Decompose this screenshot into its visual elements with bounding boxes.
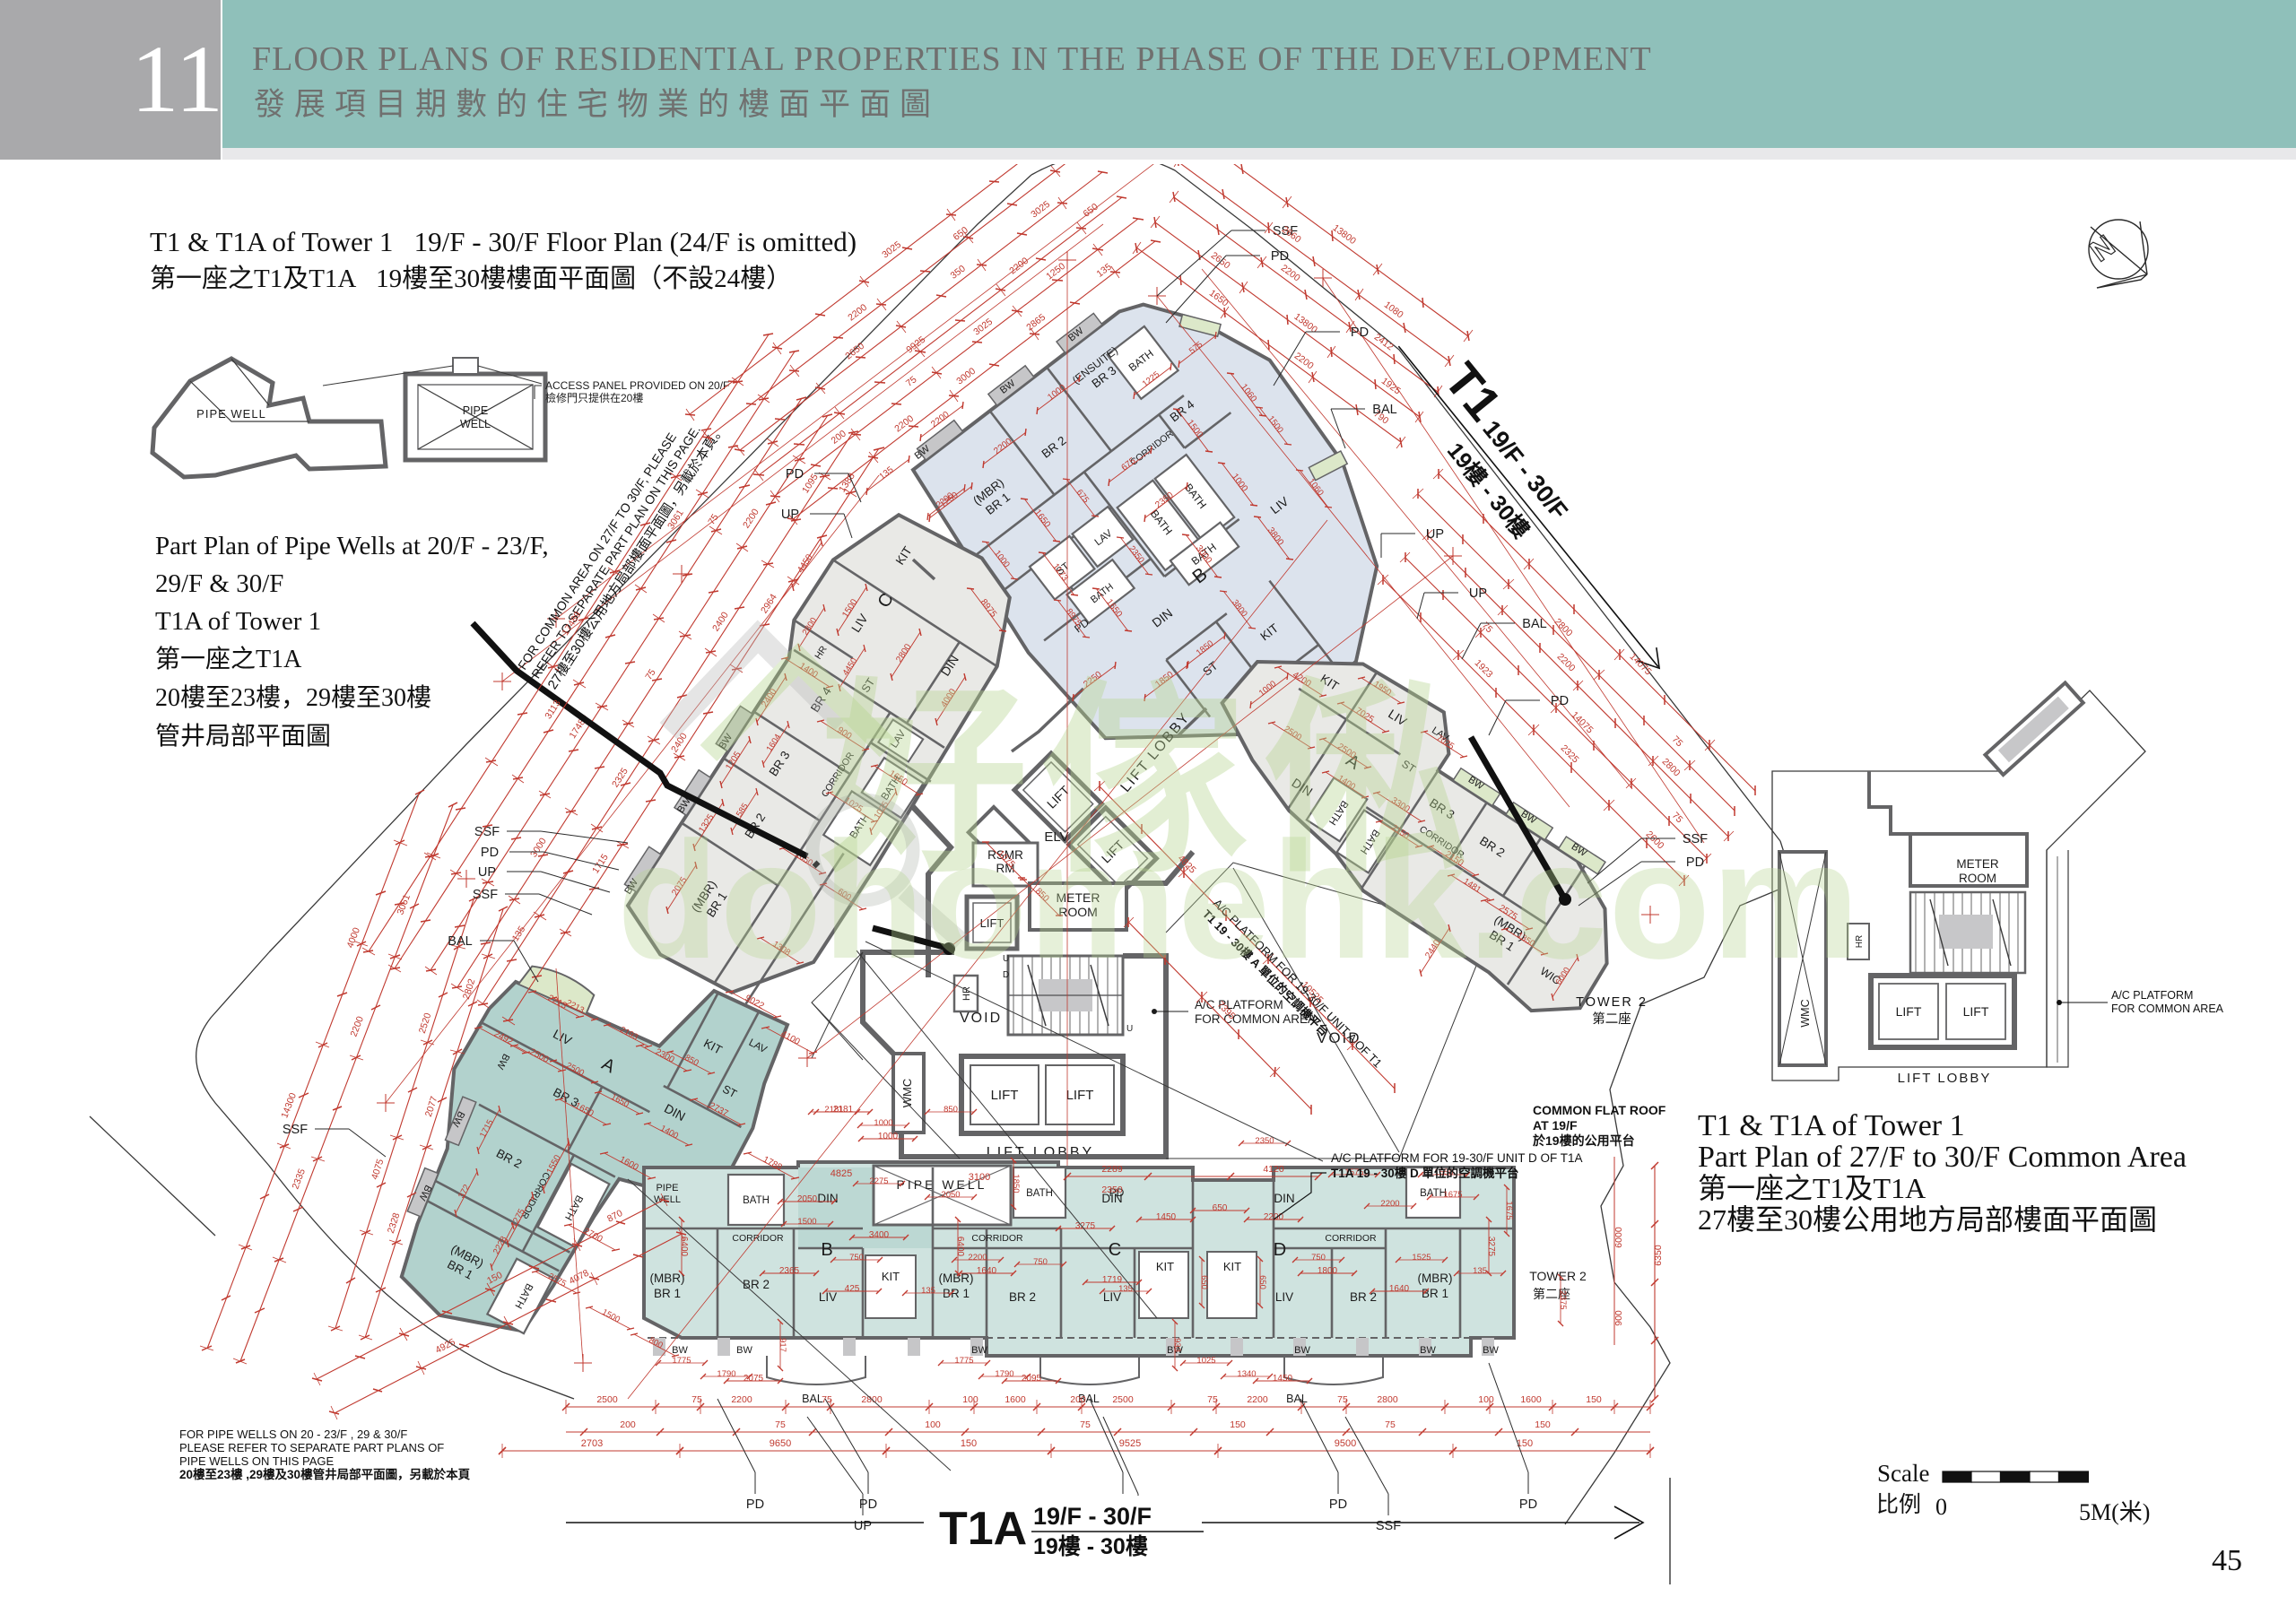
svg-text:DIN: DIN	[1274, 1192, 1294, 1205]
svg-text:COMMON FLAT ROOF: COMMON FLAT ROOF	[1533, 1103, 1666, 1117]
svg-text:BW: BW	[1420, 1345, 1436, 1356]
svg-text:BR 2: BR 2	[1350, 1290, 1377, 1304]
svg-text:1775: 1775	[672, 1356, 691, 1366]
svg-text:TOWER 2: TOWER 2	[1576, 995, 1648, 1010]
svg-text:135: 135	[1095, 261, 1114, 279]
svg-text:650: 650	[952, 224, 970, 242]
svg-text:REFER TO SEPARATE PART PLAN ON: REFER TO SEPARATE PART PLAN ON THIS PAGE…	[528, 422, 703, 681]
svg-text:WELL: WELL	[460, 418, 491, 430]
svg-text:(MBR): (MBR)	[1418, 1271, 1453, 1285]
svg-text:75: 75	[1207, 1394, 1218, 1405]
svg-text:3275: 3275	[1075, 1221, 1096, 1231]
svg-text:BAL: BAL	[1372, 403, 1396, 417]
svg-text:PD: PD	[481, 846, 499, 860]
svg-text:4120: 4120	[1263, 1164, 1284, 1175]
svg-text:1450: 1450	[1156, 1212, 1177, 1222]
svg-text:1675: 1675	[1443, 1190, 1462, 1200]
svg-text:KIT: KIT	[1223, 1260, 1241, 1273]
svg-text:200: 200	[1070, 1394, 1086, 1405]
svg-text:75: 75	[1337, 1394, 1348, 1405]
svg-text:2350: 2350	[1101, 1185, 1123, 1195]
svg-text:1450: 1450	[1273, 1374, 1293, 1384]
svg-text:1650: 1650	[1207, 288, 1231, 309]
svg-text:75: 75	[1385, 1419, 1396, 1430]
svg-text:BW: BW	[971, 1345, 987, 1356]
svg-text:CORRIDOR: CORRIDOR	[1325, 1233, 1377, 1244]
svg-text:100: 100	[962, 1394, 978, 1405]
svg-text:2865: 2865	[1024, 312, 1048, 334]
svg-text:檢修門只提供在20樓: 檢修門只提供在20樓	[545, 391, 643, 404]
svg-text:14075: 14075	[1570, 709, 1596, 735]
svg-text:2200: 2200	[348, 1015, 366, 1038]
svg-text:UP: UP	[781, 508, 799, 522]
svg-text:BR 2: BR 2	[1009, 1290, 1036, 1304]
svg-text:650: 650	[1199, 1275, 1209, 1289]
svg-text:KIT: KIT	[882, 1270, 900, 1283]
svg-text:PD: PD	[1519, 1497, 1537, 1512]
svg-text:2200: 2200	[741, 507, 761, 530]
svg-text:2200: 2200	[1555, 651, 1578, 673]
svg-text:1250: 1250	[1044, 261, 1067, 282]
svg-text:2365: 2365	[779, 1266, 800, 1276]
svg-text:75: 75	[775, 1419, 786, 1430]
svg-text:BW: BW	[1294, 1345, 1310, 1356]
svg-text:2350: 2350	[1255, 1136, 1274, 1146]
svg-text:1600: 1600	[1520, 1394, 1542, 1405]
svg-text:UP: UP	[478, 865, 496, 880]
svg-text:19/F - 30/F: 19/F - 30/F	[1033, 1503, 1152, 1530]
svg-text:2335: 2335	[290, 1167, 308, 1191]
svg-text:D: D	[1274, 1240, 1286, 1260]
svg-text:6400: 6400	[679, 1237, 689, 1257]
svg-text:BATH: BATH	[743, 1195, 770, 1206]
svg-text:2050: 2050	[941, 1190, 960, 1200]
svg-text:1800: 1800	[1318, 1266, 1338, 1276]
svg-text:CORRIDOR: CORRIDOR	[971, 1233, 1023, 1244]
svg-text:4078: 4078	[567, 1268, 590, 1287]
svg-text:A/C PLATFORM: A/C PLATFORM	[2111, 989, 2193, 1002]
svg-text:SSF: SSF	[473, 888, 498, 902]
svg-text:PIPE WELL: PIPE WELL	[196, 407, 266, 421]
svg-text:(MBR): (MBR)	[650, 1271, 685, 1285]
svg-text:6350: 6350	[1653, 1245, 1664, 1266]
svg-text:1500: 1500	[797, 1217, 816, 1227]
svg-text:1340: 1340	[1237, 1369, 1256, 1379]
svg-text:VOID: VOID	[960, 1011, 1002, 1026]
svg-text:4925: 4925	[433, 1337, 457, 1356]
svg-text:第二座: 第二座	[1592, 1011, 1631, 1027]
svg-text:2181: 2181	[824, 1105, 843, 1115]
svg-text:2325: 2325	[610, 766, 631, 789]
svg-text:PD: PD	[786, 467, 804, 482]
svg-text:1000: 1000	[878, 1132, 899, 1141]
svg-text:WMC: WMC	[1799, 999, 1812, 1027]
svg-text:FOR COMMON AREA: FOR COMMON AREA	[2111, 1002, 2224, 1015]
svg-text:750: 750	[849, 1253, 864, 1263]
svg-text:6000: 6000	[1613, 1227, 1624, 1248]
svg-text:933: 933	[1172, 1338, 1182, 1352]
svg-text:3000: 3000	[528, 836, 549, 859]
svg-text:FOR COMMON AREA ON 27/F TO 30/: FOR COMMON AREA ON 27/F TO 30/F, PLEASE	[515, 430, 679, 673]
svg-text:2800: 2800	[1660, 756, 1683, 778]
svg-text:CORRIDOR: CORRIDOR	[732, 1233, 784, 1244]
svg-text:SSF: SSF	[1376, 1519, 1401, 1533]
svg-text:1080: 1080	[1382, 299, 1405, 321]
svg-text:135: 135	[1473, 1266, 1487, 1276]
svg-text:75: 75	[822, 1394, 832, 1405]
svg-text:750: 750	[1311, 1253, 1326, 1263]
svg-text:ROOM: ROOM	[1959, 872, 1996, 885]
svg-text:750: 750	[1033, 1257, 1048, 1267]
svg-text:BAL: BAL	[448, 934, 472, 949]
svg-text:dohomehk.com: dohomehk.com	[617, 808, 1860, 994]
svg-text:850: 850	[944, 1105, 958, 1115]
svg-text:135: 135	[878, 464, 896, 482]
svg-text:1790: 1790	[717, 1369, 735, 1379]
svg-text:BATH: BATH	[1026, 1188, 1053, 1199]
svg-text:1640: 1640	[977, 1266, 997, 1276]
svg-text:LIFT: LIFT	[1963, 1004, 1989, 1019]
svg-text:1600: 1600	[1004, 1394, 1026, 1405]
svg-text:135: 135	[921, 1286, 935, 1296]
svg-text:2412: 2412	[1372, 332, 1396, 353]
svg-text:2800: 2800	[1552, 616, 1575, 638]
svg-text:3025: 3025	[880, 239, 903, 261]
svg-text:B: B	[821, 1240, 832, 1260]
svg-text:DIN: DIN	[817, 1192, 838, 1205]
svg-text:1675: 1675	[1504, 1201, 1514, 1219]
svg-text:2200: 2200	[1247, 1394, 1268, 1405]
svg-text:2400: 2400	[710, 610, 731, 633]
svg-text:2703: 2703	[581, 1438, 603, 1449]
svg-text:150: 150	[961, 1438, 977, 1449]
svg-text:650: 650	[1213, 1203, 1228, 1213]
svg-text:75: 75	[691, 1394, 702, 1405]
svg-text:2075: 2075	[744, 1374, 764, 1384]
svg-text:FOR COMMON AREA: FOR COMMON AREA	[1195, 1012, 1316, 1026]
svg-text:75: 75	[904, 374, 919, 389]
svg-text:4825: 4825	[831, 1168, 852, 1179]
svg-text:BR 1: BR 1	[1422, 1287, 1448, 1300]
svg-text:BW: BW	[736, 1345, 752, 1356]
svg-text:1525: 1525	[1412, 1253, 1431, 1263]
svg-text:A/C PLATFORM FOR 19-30/F U: A/C PLATFORM FOR 19-30/F UNIT D OF T1A	[1331, 1151, 1583, 1165]
svg-text:LIV: LIV	[819, 1290, 837, 1304]
svg-text:2800: 2800	[1377, 1394, 1398, 1405]
svg-text:2200: 2200	[892, 413, 916, 435]
svg-text:1640: 1640	[1389, 1284, 1410, 1294]
svg-text:TOWER 2: TOWER 2	[1529, 1269, 1587, 1283]
svg-text:UP: UP	[1426, 527, 1444, 542]
svg-text:2375: 2375	[1558, 1290, 1568, 1309]
svg-text:SSF: SSF	[283, 1123, 308, 1137]
svg-text:2660: 2660	[1280, 224, 1303, 246]
svg-text:2200: 2200	[1279, 263, 1302, 284]
svg-text:2200: 2200	[1380, 1199, 1399, 1209]
svg-text:3100: 3100	[969, 1172, 990, 1183]
svg-text:AT 19/F: AT 19/F	[1533, 1118, 1578, 1133]
svg-text:1790: 1790	[995, 1369, 1013, 1379]
svg-text:UP: UP	[854, 1519, 872, 1533]
svg-text:LIV: LIV	[1275, 1290, 1293, 1304]
svg-text:3025: 3025	[971, 317, 995, 338]
svg-text:BAL: BAL	[802, 1393, 823, 1405]
svg-text:T1A 19 - 30樓 D 單位的空調機平台: T1A 19 - 30樓 D 單位的空調機平台	[1331, 1166, 1519, 1180]
svg-text:1850: 1850	[1011, 1174, 1021, 1193]
svg-text:LIFT: LIFT	[1896, 1004, 1922, 1019]
svg-text:350: 350	[949, 263, 968, 281]
svg-text:4450: 4450	[796, 552, 815, 575]
svg-text:KIT: KIT	[1156, 1260, 1174, 1273]
svg-text:1388: 1388	[837, 471, 857, 494]
svg-text:2275: 2275	[869, 1176, 888, 1186]
svg-text:UP: UP	[1469, 586, 1487, 601]
svg-text:2289: 2289	[1101, 1164, 1123, 1175]
svg-text:3400: 3400	[869, 1230, 890, 1240]
svg-text:2650: 2650	[1209, 250, 1232, 272]
svg-text:LIFT: LIFT	[991, 1088, 1019, 1103]
svg-text:13800: 13800	[1330, 222, 1358, 247]
svg-text:PD: PD	[859, 1497, 877, 1512]
svg-text:2325: 2325	[1559, 742, 1581, 765]
svg-text:U: U	[1126, 1024, 1133, 1034]
svg-text:75: 75	[1080, 1419, 1091, 1430]
svg-text:2500: 2500	[596, 1394, 618, 1405]
svg-text:2500: 2500	[1112, 1394, 1134, 1405]
svg-text:LIFT LOBBY: LIFT LOBBY	[1898, 1071, 1992, 1086]
svg-text:A/C PLATFORM: A/C PLATFORM	[1195, 998, 1283, 1011]
svg-text:1025: 1025	[1196, 1356, 1215, 1366]
svg-text:2200: 2200	[731, 1394, 752, 1405]
svg-text:METER: METER	[1956, 857, 1999, 871]
svg-text:C: C	[1109, 1240, 1121, 1260]
svg-text:3025: 3025	[1029, 199, 1052, 221]
svg-text:PD: PD	[746, 1497, 764, 1512]
svg-text:650: 650	[1257, 1275, 1267, 1289]
svg-text:PD: PD	[1551, 694, 1569, 708]
svg-text:200: 200	[620, 1419, 636, 1430]
svg-text:2200: 2200	[846, 302, 869, 324]
svg-text:9650: 9650	[770, 1438, 791, 1449]
svg-text:3275: 3275	[1486, 1237, 1496, 1257]
svg-text:917: 917	[778, 1338, 787, 1352]
svg-text:900: 900	[1613, 1310, 1624, 1326]
svg-text:9500: 9500	[1335, 1438, 1356, 1449]
svg-text:BR 1: BR 1	[654, 1287, 681, 1300]
svg-text:PD: PD	[1329, 1497, 1347, 1512]
svg-text:2200: 2200	[968, 1253, 987, 1263]
svg-text:100: 100	[1478, 1394, 1494, 1405]
svg-text:ACCESS PANEL PROVIDED ON 20/: ACCESS PANEL PROVIDED ON 20/F	[545, 379, 729, 392]
svg-text:75: 75	[1480, 621, 1495, 636]
svg-text:WELL: WELL	[654, 1194, 681, 1205]
svg-text:SSF: SSF	[474, 825, 500, 839]
svg-text:1775: 1775	[954, 1356, 973, 1366]
svg-text:9525: 9525	[1119, 1438, 1141, 1449]
svg-text:BR 1: BR 1	[943, 1287, 970, 1300]
svg-text:PD: PD	[1271, 249, 1289, 264]
svg-text:PIPE: PIPE	[656, 1183, 678, 1193]
svg-text:870: 870	[605, 1208, 624, 1225]
svg-text:150: 150	[1535, 1419, 1551, 1430]
svg-text:100: 100	[925, 1419, 941, 1430]
svg-text:1000: 1000	[874, 1118, 892, 1128]
svg-text:27樓至30樓公用地方局部樓面平面圖，另載於本頁。: 27樓至30樓公用地方局部樓面平面圖，另載於本頁。	[545, 422, 728, 692]
svg-text:2650: 2650	[843, 341, 866, 362]
svg-text:2200: 2200	[1292, 351, 1316, 372]
svg-text:150: 150	[1230, 1419, 1246, 1430]
svg-text:2964: 2964	[759, 592, 779, 615]
svg-text:150: 150	[1586, 1394, 1602, 1405]
svg-text:4000: 4000	[344, 926, 362, 950]
svg-text:N: N	[2083, 229, 2120, 268]
svg-text:3000: 3000	[954, 366, 978, 387]
svg-text:19樓 - 30樓: 19樓 - 30樓	[1033, 1534, 1148, 1559]
svg-text:BW: BW	[672, 1345, 688, 1356]
svg-text:BR 2: BR 2	[743, 1278, 770, 1291]
svg-text:2095: 2095	[1022, 1374, 1042, 1384]
svg-text:425: 425	[845, 1284, 860, 1294]
svg-text:75: 75	[1670, 734, 1685, 750]
svg-text:2050: 2050	[797, 1194, 818, 1204]
svg-text:PIPE: PIPE	[463, 404, 489, 417]
svg-text:LIFT: LIFT	[1066, 1088, 1094, 1103]
svg-text:BW: BW	[1483, 1345, 1499, 1356]
svg-text:T1A: T1A	[939, 1503, 1027, 1555]
svg-text:PD: PD	[1351, 325, 1369, 340]
svg-text:6400: 6400	[955, 1237, 965, 1257]
svg-text:於19樓的公用平台: 於19樓的公用平台	[1533, 1133, 1635, 1148]
